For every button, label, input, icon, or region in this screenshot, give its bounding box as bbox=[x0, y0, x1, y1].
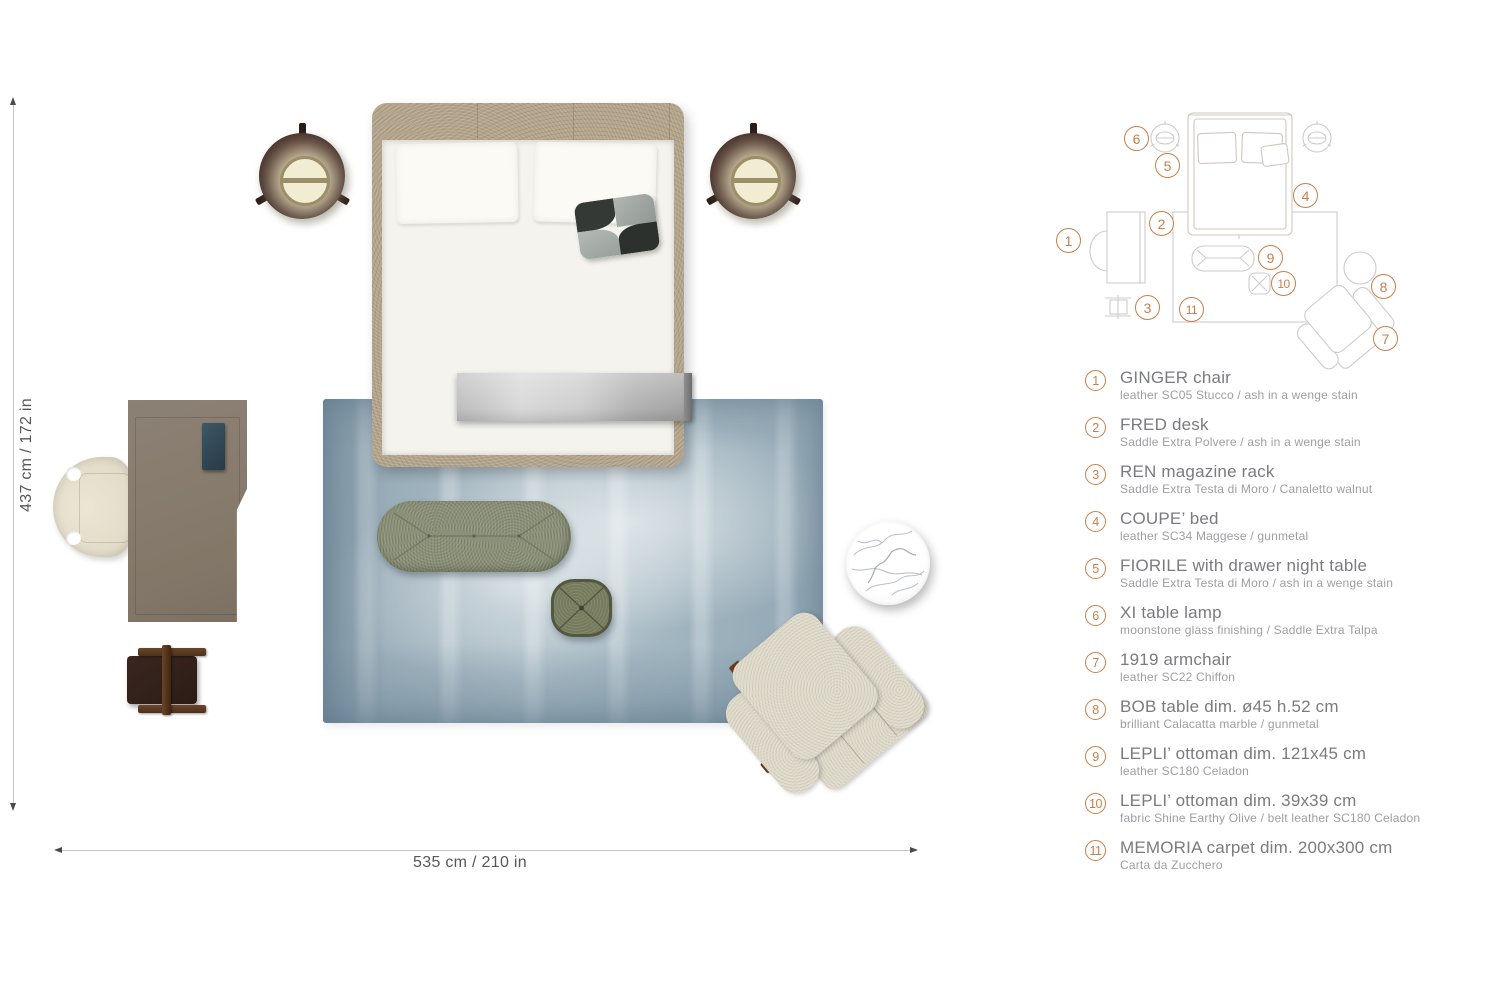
bed-headboard bbox=[382, 103, 674, 140]
diagram-badge-9: 9 bbox=[1258, 245, 1283, 270]
diagram-badge-11: 11 bbox=[1179, 297, 1204, 322]
legend-num: 8 bbox=[1085, 699, 1106, 720]
mini-ottoman-small bbox=[1249, 273, 1270, 294]
decor-cushion bbox=[573, 193, 660, 261]
dimension-line-vertical bbox=[13, 100, 14, 808]
diagram-badge-2: 2 bbox=[1149, 211, 1174, 236]
legend-num: 6 bbox=[1085, 605, 1106, 626]
legend-name: LEPLI’ ottoman dim. 39x39 cm bbox=[1120, 791, 1420, 811]
diagram-badge-5: 5 bbox=[1155, 153, 1180, 178]
legend-name: REN magazine rack bbox=[1120, 462, 1372, 482]
lepli-ottoman-large bbox=[377, 501, 571, 572]
diagram-badge-1: 1 bbox=[1056, 228, 1081, 253]
legend-spec: leather SC180 Celadon bbox=[1120, 764, 1366, 778]
legend-item-ginger-chair: 1 GINGER chair leather SC05 Stucco / ash… bbox=[1085, 368, 1485, 402]
mini-chair bbox=[1090, 231, 1107, 271]
diagram-badge-8: 8 bbox=[1371, 274, 1396, 299]
fiorile-night-table-left bbox=[257, 131, 347, 221]
legend-spec: brilliant Calacatta marble / gunmetal bbox=[1120, 717, 1339, 731]
legend-name: GINGER chair bbox=[1120, 368, 1358, 388]
mini-rack bbox=[1105, 295, 1131, 319]
mini-floorplan bbox=[1050, 105, 1410, 370]
legend-name: MEMORIA carpet dim. 200x300 cm bbox=[1120, 838, 1392, 858]
legend-item-1919-armchair: 7 1919 armchair leather SC22 Chiffon bbox=[1085, 650, 1485, 684]
fred-desk bbox=[128, 400, 247, 622]
legend-spec: leather SC22 Chiffon bbox=[1120, 670, 1235, 684]
ottoman-seams bbox=[377, 501, 571, 572]
pillow-left bbox=[395, 142, 518, 224]
legend-item-ren-magazine-rack: 3 REN magazine rack Saddle Extra Testa d… bbox=[1085, 462, 1485, 496]
desk-accessory bbox=[202, 423, 225, 470]
legend-num: 5 bbox=[1085, 558, 1106, 579]
legend-spec: Saddle Extra Polvere / ash in a wenge st… bbox=[1120, 435, 1361, 449]
legend-num: 9 bbox=[1085, 746, 1106, 767]
diagram-badge-6: 6 bbox=[1124, 126, 1149, 151]
legend-name: 1919 armchair bbox=[1120, 650, 1235, 670]
legend-name: FRED desk bbox=[1120, 415, 1361, 435]
mini-lamp-left bbox=[1151, 121, 1179, 152]
diagram-badge-7: 7 bbox=[1373, 326, 1398, 351]
bed-foot-runner-overhang bbox=[684, 373, 692, 421]
dimension-line-horizontal bbox=[57, 850, 915, 851]
legend-item-fiorile-night-table: 5 FIORILE with drawer night table Saddle… bbox=[1085, 556, 1485, 590]
ren-magazine-rack bbox=[122, 645, 212, 717]
legend-spec: leather SC34 Maggese / gunmetal bbox=[1120, 529, 1308, 543]
legend-num: 3 bbox=[1085, 464, 1106, 485]
legend-item-lepli-ottoman-small: 10 LEPLI’ ottoman dim. 39x39 cm fabric S… bbox=[1085, 791, 1485, 825]
legend-item-fred-desk: 2 FRED desk Saddle Extra Polvere / ash i… bbox=[1085, 415, 1485, 449]
legend-name: FIORILE with drawer night table bbox=[1120, 556, 1393, 576]
bob-table bbox=[846, 521, 930, 605]
legend-num: 7 bbox=[1085, 652, 1106, 673]
legend-spec: Saddle Extra Testa di Moro / ash in a we… bbox=[1120, 576, 1393, 590]
legend-item-xi-table-lamp: 6 XI table lamp moonstone glass finishin… bbox=[1085, 603, 1485, 637]
lepli-ottoman-small bbox=[551, 579, 612, 637]
marble-veins bbox=[846, 521, 930, 605]
mini-lamp-right bbox=[1303, 121, 1331, 152]
room-planner-page: 437 cm / 172 in 535 cm / 210 in bbox=[0, 0, 1500, 995]
diagram-badge-4: 4 bbox=[1293, 183, 1318, 208]
legend: 1 GINGER chair leather SC05 Stucco / ash… bbox=[1085, 368, 1485, 885]
dimension-label-height: 437 cm / 172 in bbox=[18, 398, 36, 512]
legend-name: XI table lamp bbox=[1120, 603, 1378, 623]
legend-spec: Saddle Extra Testa di Moro / Canaletto w… bbox=[1120, 482, 1372, 496]
dimension-label-width: 535 cm / 210 in bbox=[413, 854, 527, 872]
legend-item-memoria-carpet: 11 MEMORIA carpet dim. 200x300 cm Carta … bbox=[1085, 838, 1485, 872]
bed-foot-runner bbox=[457, 373, 684, 421]
xi-table-lamp-left bbox=[280, 156, 330, 206]
legend-spec: fabric Shine Earthy Olive / belt leather… bbox=[1120, 811, 1420, 825]
legend-name: LEPLI’ ottoman dim. 121x45 cm bbox=[1120, 744, 1366, 764]
legend-spec: Carta da Zucchero bbox=[1120, 858, 1392, 872]
mini-bob-table bbox=[1344, 252, 1376, 284]
mini-desk bbox=[1090, 212, 1145, 283]
legend-num: 4 bbox=[1085, 511, 1106, 532]
diagram-badge-3: 3 bbox=[1135, 295, 1160, 320]
legend-spec: leather SC05 Stucco / ash in a wenge sta… bbox=[1120, 388, 1358, 402]
legend-num: 10 bbox=[1085, 793, 1106, 814]
legend-num: 2 bbox=[1085, 417, 1106, 438]
legend-item-bob-table: 8 BOB table dim. ø45 h.52 cm brilliant C… bbox=[1085, 697, 1485, 731]
legend-item-lepli-ottoman-large: 9 LEPLI’ ottoman dim. 121x45 cm leather … bbox=[1085, 744, 1485, 778]
diagram-badge-10: 10 bbox=[1271, 271, 1296, 296]
mini-ottoman-large bbox=[1192, 246, 1254, 271]
legend-name: BOB table dim. ø45 h.52 cm bbox=[1120, 697, 1339, 717]
mini-bed bbox=[1188, 113, 1292, 239]
ginger-chair bbox=[53, 457, 133, 557]
legend-name: COUPE’ bed bbox=[1120, 509, 1308, 529]
ottoman-x-seams bbox=[554, 582, 609, 634]
legend-spec: moonstone glass finishing / Saddle Extra… bbox=[1120, 623, 1378, 637]
legend-num: 1 bbox=[1085, 370, 1106, 391]
legend-item-coupe-bed: 4 COUPE’ bed leather SC34 Maggese / gunm… bbox=[1085, 509, 1485, 543]
legend-num: 11 bbox=[1085, 840, 1106, 861]
fiorile-night-table-right bbox=[708, 131, 798, 221]
xi-table-lamp-right bbox=[731, 156, 781, 206]
